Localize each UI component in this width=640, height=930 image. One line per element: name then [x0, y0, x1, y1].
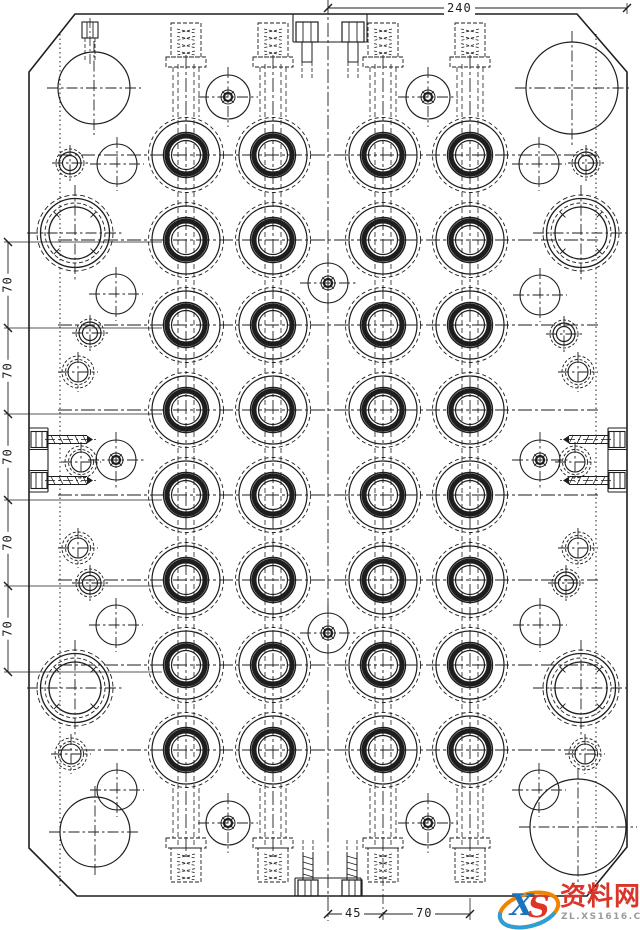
dimension-label-45-bottom: 45 [342, 907, 364, 920]
dimension-label-70-left-5: 70 [2, 617, 15, 639]
watermark-logo-icon: X S [496, 886, 562, 930]
watermark-title: 资料网 [560, 884, 640, 910]
dimension-label-70-left-4: 70 [2, 531, 15, 553]
mold-plate-engineering-drawing [0, 0, 640, 930]
background [0, 0, 640, 930]
watermark-url: ZL.XS1616.COM [561, 912, 640, 922]
watermark-letter-s: S [528, 890, 550, 925]
dimension-label-70-left-1: 70 [2, 273, 15, 295]
dimension-label-70-left-3: 70 [2, 445, 15, 467]
watermark: X S 资料网 ZL.XS1616.COM [496, 878, 640, 930]
drawing-canvas: 240 70 70 70 70 70 45 70 X S 资料网 ZL.XS16… [0, 0, 640, 930]
dimension-label-70-bottom: 70 [413, 907, 435, 920]
dimension-label-70-left-2: 70 [2, 359, 15, 381]
dimension-label-240: 240 [444, 2, 475, 15]
